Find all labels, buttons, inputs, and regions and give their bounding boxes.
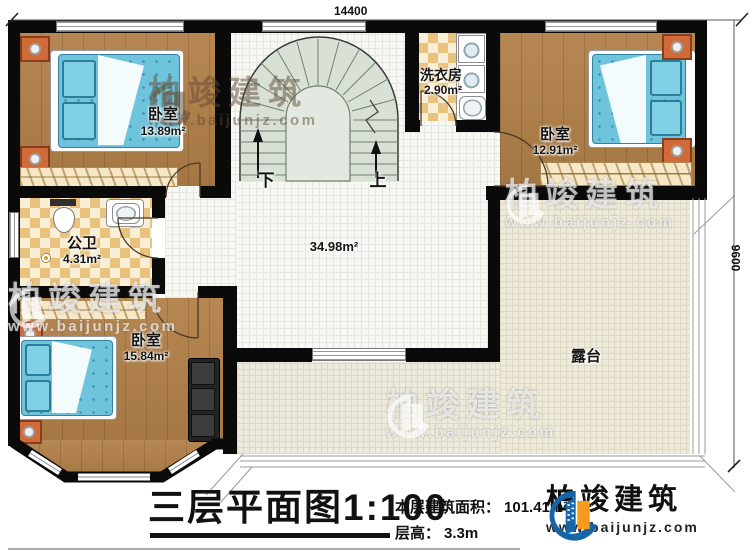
staircase-icon xyxy=(237,37,399,181)
dimension-right: 9600 xyxy=(729,245,741,272)
plan-title-text: 三层平面图 xyxy=(148,489,343,526)
plan-overlay xyxy=(0,0,750,552)
floor-area-label: 本层建筑面积： xyxy=(395,500,500,515)
dimension-top: 14400 xyxy=(334,5,367,17)
footer-rule xyxy=(8,548,520,550)
brand-logo-icon xyxy=(546,486,602,544)
floor-height-value: 3.3m xyxy=(444,526,478,541)
floor-plan-sheet: 14400 9600 卧室 13.89m² 公卫 4.31m² 卧室 15.84… xyxy=(0,0,750,552)
railing-lines xyxy=(206,196,735,503)
bathroom-area: 4.31m² xyxy=(63,253,101,265)
bay-window xyxy=(13,442,232,477)
brand-logo: 柏竣建筑 www.baijunjz.com xyxy=(546,486,699,534)
stair-down-label: 下 xyxy=(258,172,275,189)
laundry-area: 2.90m² xyxy=(424,84,462,96)
bedroom1-label: 卧室 xyxy=(148,107,178,122)
bedroom2-label: 卧室 xyxy=(540,127,570,142)
bedroom3-area: 15.84m² xyxy=(124,350,169,362)
stair-up-label: 上 xyxy=(370,172,387,189)
title-underline xyxy=(150,533,390,538)
hall-area: 34.98m² xyxy=(310,240,358,253)
bedroom2-area: 12.91m² xyxy=(533,144,578,156)
bedroom3-label: 卧室 xyxy=(131,333,161,348)
bathroom-label: 公卫 xyxy=(67,236,97,251)
floor-area-line: 本层建筑面积： 101.41m² xyxy=(395,500,568,515)
floor-height-line: 层高： 3.3m xyxy=(395,526,478,541)
laundry-label: 洗衣房 xyxy=(420,68,462,82)
floor-height-label: 层高： xyxy=(395,526,440,541)
bedroom1-area: 13.89m² xyxy=(141,125,186,137)
terrace-label: 露台 xyxy=(571,349,601,364)
